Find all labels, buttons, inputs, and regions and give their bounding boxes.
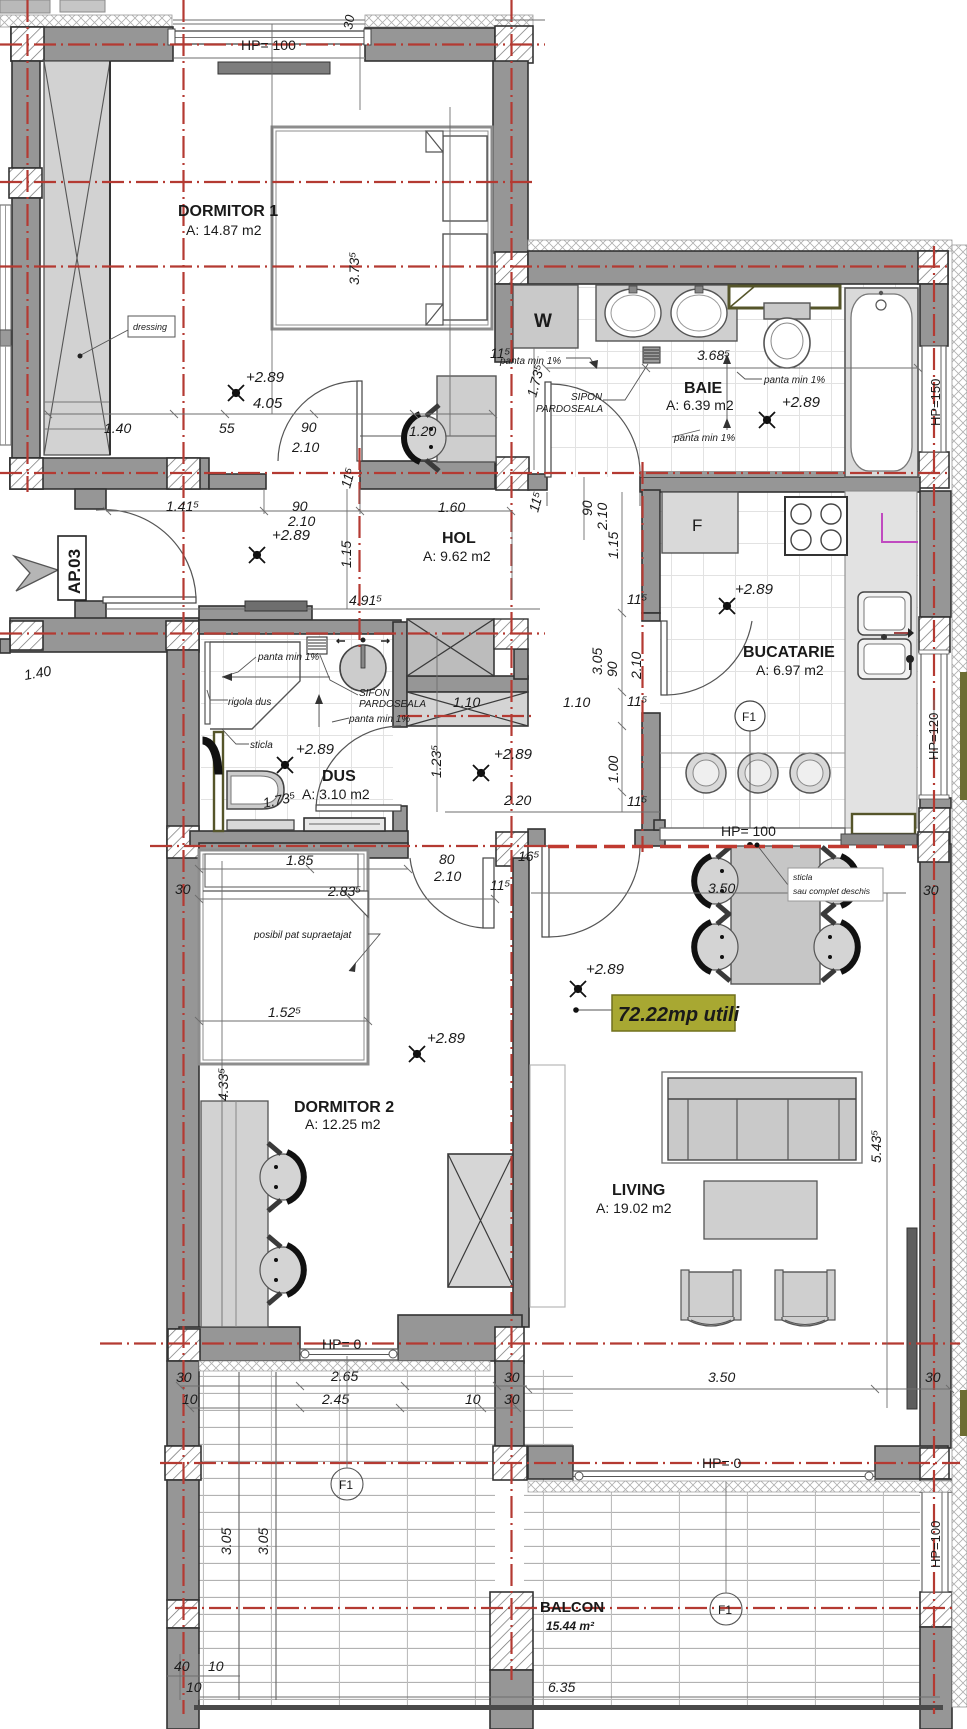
svg-text:2.10: 2.10 <box>287 513 315 529</box>
svg-text:11⁵: 11⁵ <box>490 877 511 893</box>
svg-text:LIVING: LIVING <box>612 1182 665 1199</box>
svg-text:1.23⁵: 1.23⁵ <box>428 745 444 778</box>
svg-text:10: 10 <box>182 1391 198 1407</box>
svg-text:3.50: 3.50 <box>708 880 735 896</box>
svg-text:15.44 m²: 15.44 m² <box>546 1619 595 1633</box>
svg-text:+2.89: +2.89 <box>296 741 335 758</box>
svg-text:1.15: 1.15 <box>605 532 621 559</box>
svg-text:90: 90 <box>292 498 308 514</box>
svg-text:10: 10 <box>186 1679 202 1695</box>
svg-text:3.05: 3.05 <box>255 1528 271 1555</box>
svg-text:1.10: 1.10 <box>563 694 590 710</box>
svg-text:HP= 100: HP= 100 <box>241 37 296 53</box>
svg-text:30: 30 <box>925 1369 941 1385</box>
svg-text:dressing: dressing <box>133 322 167 332</box>
svg-text:16⁵: 16⁵ <box>518 848 540 864</box>
svg-text:2.10: 2.10 <box>628 652 644 680</box>
svg-text:+2.89: +2.89 <box>735 581 774 598</box>
svg-text:rigola dus: rigola dus <box>228 697 271 708</box>
svg-text:DORMITOR 1: DORMITOR 1 <box>178 203 278 220</box>
svg-text:HP= 0: HP= 0 <box>322 1336 362 1352</box>
svg-text:W: W <box>534 311 552 332</box>
svg-text:3.73⁵: 3.73⁵ <box>346 252 362 285</box>
svg-text:+2.89: +2.89 <box>272 527 311 544</box>
svg-text:BUCATARIE: BUCATARIE <box>743 644 835 661</box>
svg-text:DUS: DUS <box>322 768 356 785</box>
svg-text:DORMITOR 2: DORMITOR 2 <box>294 1099 394 1116</box>
svg-text:72.22mp utili: 72.22mp utili <box>618 1004 740 1026</box>
svg-text:SIPON: SIPON <box>571 392 603 403</box>
svg-text:PARDOSEALA: PARDOSEALA <box>536 404 603 415</box>
svg-text:1.15: 1.15 <box>338 541 354 568</box>
svg-text:30: 30 <box>923 882 939 898</box>
svg-text:+2.89: +2.89 <box>246 369 285 386</box>
svg-text:F1: F1 <box>742 710 756 724</box>
svg-text:1.52⁵: 1.52⁵ <box>268 1004 301 1020</box>
svg-text:2.65: 2.65 <box>330 1368 358 1384</box>
svg-text:1.40: 1.40 <box>104 420 131 436</box>
svg-text:sticla: sticla <box>793 872 813 882</box>
svg-text:11⁵: 11⁵ <box>627 693 648 709</box>
svg-text:90: 90 <box>604 661 620 677</box>
svg-text:6.35: 6.35 <box>548 1679 575 1695</box>
svg-text:HP= 100: HP= 100 <box>721 823 776 839</box>
svg-text:F: F <box>692 516 702 535</box>
svg-text:1.60: 1.60 <box>438 499 465 515</box>
svg-text:30: 30 <box>504 1391 520 1407</box>
svg-text:panta min 1%: panta min 1% <box>673 433 735 444</box>
svg-text:2.10: 2.10 <box>433 868 461 884</box>
svg-text:A: 12.25 m2: A: 12.25 m2 <box>305 1116 381 1132</box>
svg-text:3.05: 3.05 <box>218 1528 234 1555</box>
svg-text:+2.89: +2.89 <box>427 1030 466 1047</box>
svg-text:SIFON: SIFON <box>359 688 390 699</box>
svg-text:+2.89: +2.89 <box>586 961 625 978</box>
svg-text:30: 30 <box>504 1369 520 1385</box>
svg-text:BAIE: BAIE <box>684 380 723 397</box>
svg-text:10: 10 <box>208 1658 224 1674</box>
svg-text:11⁵: 11⁵ <box>627 793 648 809</box>
svg-text:BALCON: BALCON <box>540 1599 604 1616</box>
svg-text:A: 19.02 m2: A: 19.02 m2 <box>596 1200 672 1216</box>
svg-text:5.43⁵: 5.43⁵ <box>868 1130 884 1163</box>
svg-text:3.05: 3.05 <box>589 648 605 675</box>
svg-text:F1: F1 <box>339 1478 353 1492</box>
svg-text:30: 30 <box>176 1369 192 1385</box>
svg-text:1.10: 1.10 <box>453 694 480 710</box>
svg-text:4.91⁵: 4.91⁵ <box>349 592 382 608</box>
svg-text:55: 55 <box>219 420 235 436</box>
svg-text:2.83⁵: 2.83⁵ <box>327 883 361 899</box>
svg-text:panta min 1%: panta min 1% <box>763 375 825 386</box>
svg-text:sticla: sticla <box>250 740 273 751</box>
svg-text:F1: F1 <box>718 1603 732 1617</box>
svg-text:4.33⁵: 4.33⁵ <box>215 1068 231 1101</box>
svg-text:2.10: 2.10 <box>291 439 319 455</box>
svg-text:HP= 0: HP= 0 <box>702 1455 742 1471</box>
svg-text:11⁵: 11⁵ <box>627 591 648 607</box>
svg-text:2.45: 2.45 <box>321 1391 349 1407</box>
svg-text:A: 6.39 m2: A: 6.39 m2 <box>666 397 734 413</box>
svg-text:1.20: 1.20 <box>409 423 436 439</box>
svg-text:HP=120: HP=120 <box>926 713 941 760</box>
svg-text:90: 90 <box>579 500 595 516</box>
svg-text:10: 10 <box>465 1391 481 1407</box>
svg-text:PARDOSEALA: PARDOSEALA <box>359 699 426 710</box>
svg-text:1.85: 1.85 <box>286 852 313 868</box>
svg-text:2.10: 2.10 <box>594 503 610 531</box>
svg-text:+2.89: +2.89 <box>494 746 533 763</box>
svg-text:HOL: HOL <box>442 530 476 547</box>
svg-text:1.00: 1.00 <box>605 756 621 783</box>
svg-text:1.41⁵: 1.41⁵ <box>166 498 199 514</box>
svg-text:40: 40 <box>174 1658 190 1674</box>
svg-text:30: 30 <box>175 881 191 897</box>
svg-text:4.05: 4.05 <box>253 395 283 412</box>
svg-text:90: 90 <box>301 419 317 435</box>
svg-text:A: 9.62 m2: A: 9.62 m2 <box>423 548 491 564</box>
svg-text:A: 6.97 m2: A: 6.97 m2 <box>756 662 824 678</box>
svg-text:panta min 1%: panta min 1% <box>257 652 319 663</box>
svg-text:posibil pat supraetajat: posibil pat supraetajat <box>253 930 353 941</box>
svg-text:AP.03: AP.03 <box>65 549 84 594</box>
svg-text:+2.89: +2.89 <box>782 394 821 411</box>
svg-text:HP=150: HP=150 <box>928 379 943 426</box>
svg-text:A: 14.87 m2: A: 14.87 m2 <box>186 222 262 238</box>
svg-text:A: 3.10 m2: A: 3.10 m2 <box>302 786 370 802</box>
svg-text:3.50: 3.50 <box>708 1369 735 1385</box>
svg-text:panta min 1%: panta min 1% <box>348 714 410 725</box>
svg-text:80: 80 <box>439 851 455 867</box>
svg-text:3.68⁵: 3.68⁵ <box>697 347 730 363</box>
svg-text:2.20: 2.20 <box>503 792 531 808</box>
svg-text:panta min 1%: panta min 1% <box>499 356 561 367</box>
svg-text:HP=100: HP=100 <box>928 1521 943 1568</box>
svg-text:sau complet deschis: sau complet deschis <box>793 886 871 896</box>
